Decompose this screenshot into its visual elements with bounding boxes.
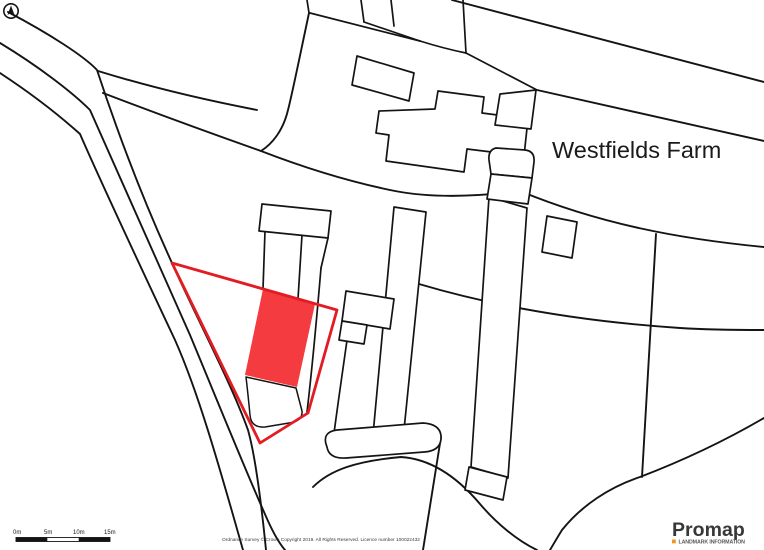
- scale-bar-label: 15m: [104, 530, 116, 536]
- promap-wordmark: Promap: [672, 519, 745, 541]
- scale-bar-segment: [16, 538, 47, 542]
- place-label: Westfields Farm: [552, 137, 721, 163]
- scale-bar-label: 0m: [13, 530, 21, 536]
- map-page: Westfields Farm 0m 5m 10m 15m Ordnance S…: [0, 0, 764, 550]
- map-canvas[interactable]: Westfields Farm 0m 5m 10m 15m Ordnance S…: [0, 0, 764, 550]
- scale-bar-segment: [79, 538, 110, 542]
- brand-accent-icon: [672, 540, 676, 544]
- attribution-text: Ordnance Survey © Crown Copyright 2019. …: [222, 536, 420, 543]
- promap-logo: Promap LANDMARK INFORMATION: [672, 519, 746, 546]
- promap-tagline: LANDMARK INFORMATION: [679, 540, 746, 546]
- scale-bar-label: 10m: [73, 530, 85, 536]
- scale-bar-label: 5m: [44, 530, 52, 536]
